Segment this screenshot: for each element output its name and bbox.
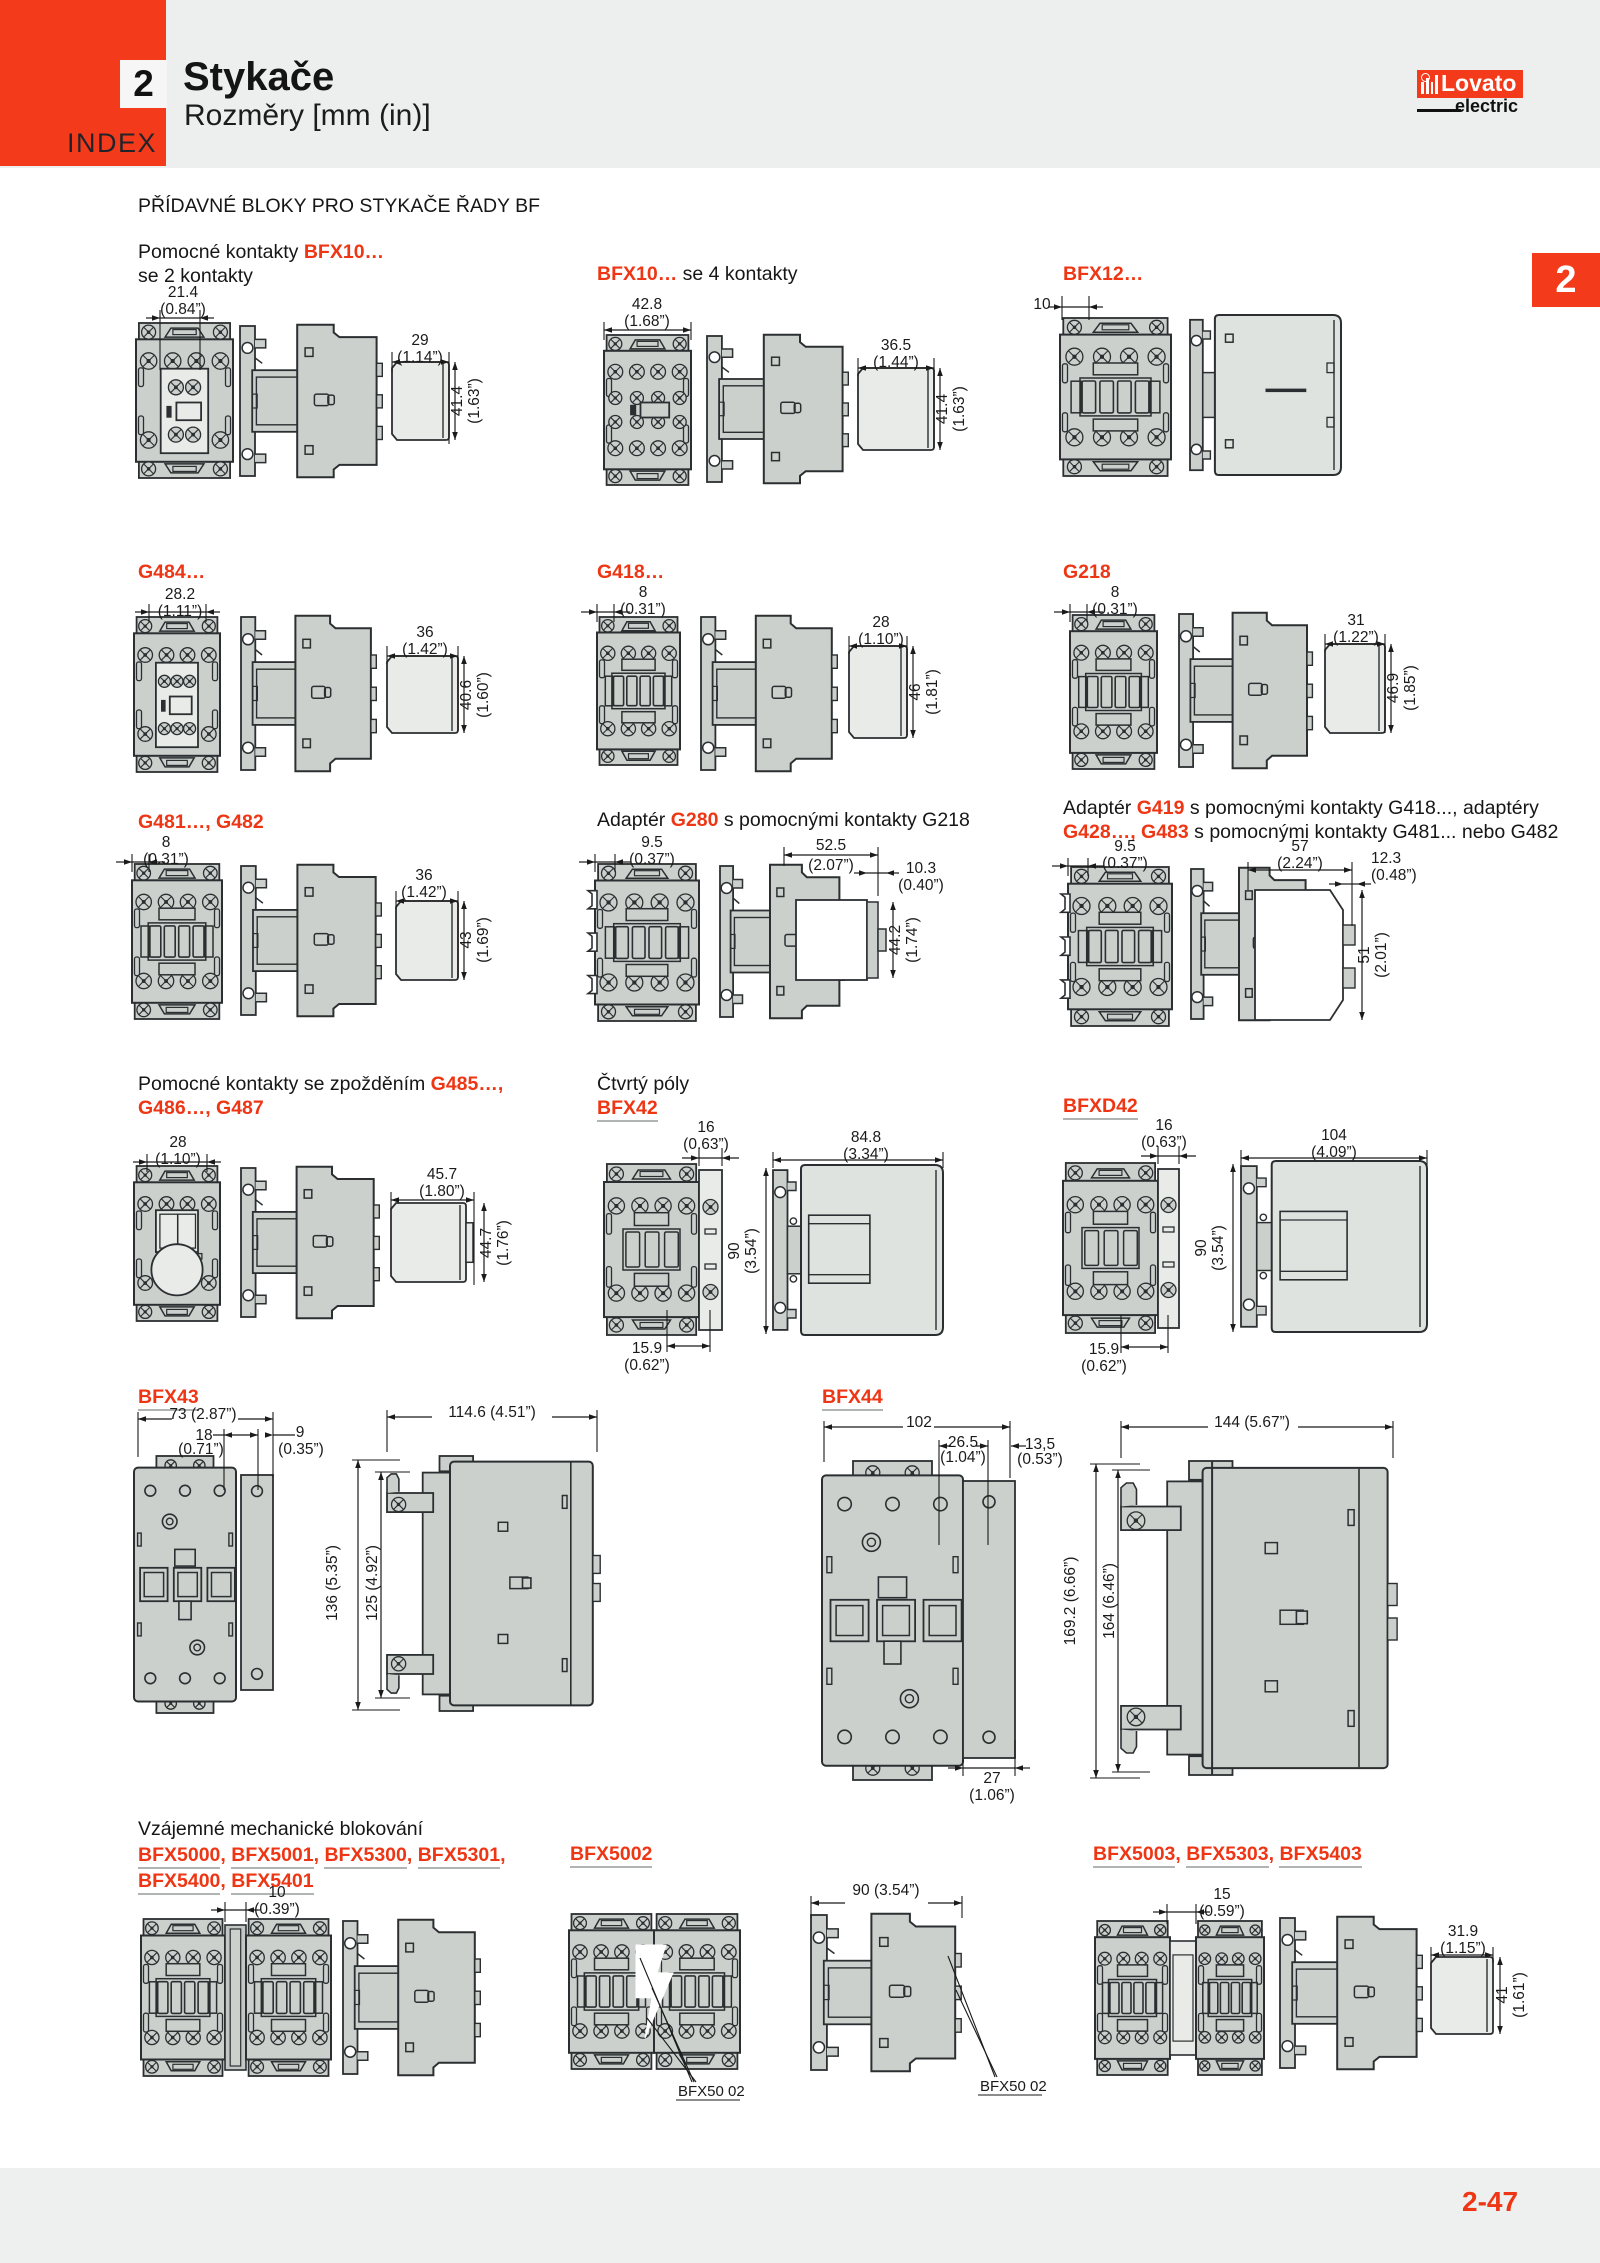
svg-text:(0.40”): (0.40”) bbox=[898, 877, 944, 894]
svg-text:90: 90 bbox=[1193, 1239, 1210, 1257]
svg-text:31.9: 31.9 bbox=[1448, 1923, 1478, 1940]
svg-text:(1.60”): (1.60”) bbox=[475, 672, 492, 718]
svg-text:12.3: 12.3 bbox=[1371, 850, 1401, 867]
svg-text:BFX50 02: BFX50 02 bbox=[980, 2078, 1047, 2095]
svg-text:(1.10”): (1.10”) bbox=[155, 1151, 201, 1168]
svg-text:8: 8 bbox=[1111, 584, 1120, 601]
svg-text:90 (3.54”): 90 (3.54”) bbox=[852, 1882, 919, 1899]
svg-text:73 (2.87”): 73 (2.87”) bbox=[169, 1406, 236, 1423]
svg-text:10.3: 10.3 bbox=[906, 860, 936, 877]
svg-text:(1.81”): (1.81”) bbox=[924, 669, 941, 715]
svg-text:(0.37”): (0.37”) bbox=[1102, 855, 1148, 872]
svg-text:31: 31 bbox=[1347, 612, 1364, 629]
svg-text:36.5: 36.5 bbox=[881, 337, 911, 354]
svg-text:57: 57 bbox=[1291, 838, 1308, 855]
svg-text:144 (5.67”): 144 (5.67”) bbox=[1214, 1414, 1290, 1431]
svg-text:(1.61”): (1.61”) bbox=[1511, 1972, 1528, 2018]
svg-text:51: 51 bbox=[1356, 946, 1373, 963]
svg-text:15.9: 15.9 bbox=[632, 1340, 662, 1357]
svg-text:(1.06”): (1.06”) bbox=[969, 1787, 1015, 1804]
svg-text:41.4: 41.4 bbox=[449, 386, 466, 417]
svg-text:(2.07”): (2.07”) bbox=[808, 857, 854, 874]
svg-text:44.7: 44.7 bbox=[478, 1228, 495, 1258]
svg-text:21.4: 21.4 bbox=[168, 284, 199, 301]
svg-text:(1.76”): (1.76”) bbox=[495, 1220, 512, 1266]
svg-text:8: 8 bbox=[162, 834, 171, 851]
svg-text:136 (5.35”): 136 (5.35”) bbox=[324, 1545, 341, 1621]
svg-text:36: 36 bbox=[416, 624, 433, 641]
svg-text:28: 28 bbox=[872, 614, 889, 631]
svg-text:10: 10 bbox=[268, 1884, 286, 1901]
svg-text:(0.48”): (0.48”) bbox=[1371, 867, 1417, 884]
svg-text:(2.01”): (2.01”) bbox=[1373, 932, 1390, 978]
svg-text:27: 27 bbox=[983, 1770, 1000, 1787]
svg-text:45.7: 45.7 bbox=[427, 1166, 457, 1183]
svg-text:16: 16 bbox=[697, 1119, 714, 1136]
svg-text:(1.04”): (1.04”) bbox=[940, 1449, 986, 1466]
svg-text:28.2: 28.2 bbox=[165, 586, 195, 603]
svg-text:9.5: 9.5 bbox=[1114, 838, 1136, 855]
svg-text:104: 104 bbox=[1321, 1127, 1347, 1144]
svg-text:90: 90 bbox=[726, 1242, 743, 1260]
svg-text:(0.62”): (0.62”) bbox=[1081, 1358, 1127, 1375]
svg-text:15: 15 bbox=[1213, 1886, 1230, 1903]
svg-text:40.6: 40.6 bbox=[458, 680, 475, 710]
svg-text:(0.31”): (0.31”) bbox=[1092, 601, 1138, 618]
svg-text:36: 36 bbox=[415, 867, 432, 884]
svg-text:(3.54”): (3.54”) bbox=[1210, 1225, 1227, 1271]
svg-text:(0.53”): (0.53”) bbox=[1017, 1451, 1063, 1468]
svg-text:(1.14”): (1.14”) bbox=[397, 349, 443, 366]
svg-text:41: 41 bbox=[1494, 1986, 1511, 2003]
svg-text:(0.62”): (0.62”) bbox=[624, 1357, 670, 1374]
svg-text:(0.71”): (0.71”) bbox=[178, 1441, 224, 1458]
svg-text:164 (6.46”): 164 (6.46”) bbox=[1101, 1563, 1118, 1639]
svg-text:102: 102 bbox=[906, 1414, 932, 1431]
svg-text:(0.31”): (0.31”) bbox=[143, 851, 189, 868]
svg-text:9.5: 9.5 bbox=[641, 834, 663, 851]
svg-text:41.4: 41.4 bbox=[934, 394, 951, 425]
svg-text:15.9: 15.9 bbox=[1089, 1341, 1119, 1358]
svg-text:9: 9 bbox=[296, 1424, 305, 1441]
svg-text:(1.80”): (1.80”) bbox=[419, 1183, 465, 1200]
svg-text:46: 46 bbox=[907, 683, 924, 700]
svg-text:(0.84”): (0.84”) bbox=[160, 301, 206, 318]
svg-text:42.8: 42.8 bbox=[632, 296, 662, 313]
svg-text:(0.63”): (0.63”) bbox=[1141, 1134, 1187, 1151]
svg-text:43: 43 bbox=[458, 931, 475, 948]
svg-text:(0.31”): (0.31”) bbox=[620, 601, 666, 618]
svg-text:(1.63”): (1.63”) bbox=[951, 386, 968, 432]
svg-text:29: 29 bbox=[411, 332, 428, 349]
svg-text:(3.54”): (3.54”) bbox=[743, 1228, 760, 1274]
svg-text:10: 10 bbox=[1033, 296, 1051, 313]
svg-text:16: 16 bbox=[1155, 1117, 1172, 1134]
svg-text:125 (4.92”): 125 (4.92”) bbox=[364, 1545, 381, 1621]
svg-text:52.5: 52.5 bbox=[816, 837, 846, 854]
svg-text:(0.39”): (0.39”) bbox=[254, 1901, 300, 1918]
svg-text:(1.74”): (1.74”) bbox=[904, 917, 921, 963]
svg-text:84.8: 84.8 bbox=[851, 1129, 881, 1146]
svg-text:(0.35”): (0.35”) bbox=[278, 1441, 324, 1458]
svg-text:(1.63”): (1.63”) bbox=[466, 378, 483, 424]
svg-text:8: 8 bbox=[639, 584, 648, 601]
svg-text:(0.37”): (0.37”) bbox=[629, 851, 675, 868]
svg-text:44.2: 44.2 bbox=[887, 925, 904, 955]
svg-text:28: 28 bbox=[169, 1134, 186, 1151]
svg-text:(1.42”): (1.42”) bbox=[401, 884, 447, 901]
svg-text:(1.69”): (1.69”) bbox=[475, 917, 492, 963]
svg-text:(1.68”): (1.68”) bbox=[624, 313, 670, 330]
svg-text:46.9: 46.9 bbox=[1385, 673, 1402, 703]
svg-text:114.6 (4.51”): 114.6 (4.51”) bbox=[448, 1404, 536, 1421]
svg-text:(1.85”): (1.85”) bbox=[1402, 665, 1419, 711]
svg-text:BFX50 02: BFX50 02 bbox=[678, 2083, 745, 2100]
svg-text:169.2 (6.66”): 169.2 (6.66”) bbox=[1062, 1557, 1079, 1646]
